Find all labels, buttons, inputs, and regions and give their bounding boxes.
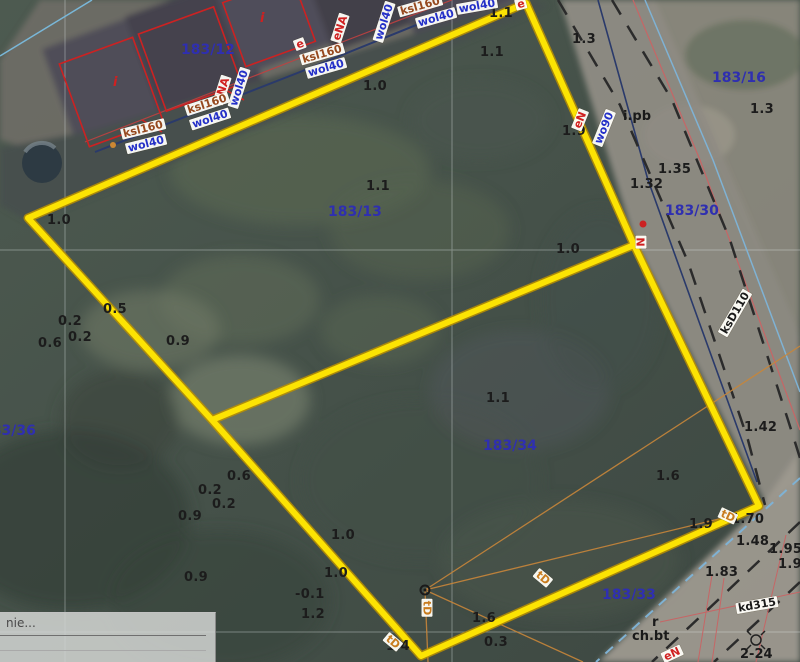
orange-point-symbol — [110, 142, 116, 148]
aerial-basemap — [0, 0, 800, 662]
panel-text: nie... — [0, 613, 215, 633]
map-viewport[interactable]: 183/12183/13183/16183/30183/34183/33183/… — [0, 0, 800, 662]
panel-divider-2 — [0, 650, 206, 651]
water-tank-feature — [22, 143, 62, 183]
red-point-symbol — [640, 221, 647, 228]
bottom-left-panel[interactable]: nie... — [0, 612, 216, 662]
panel-divider — [0, 635, 206, 636]
